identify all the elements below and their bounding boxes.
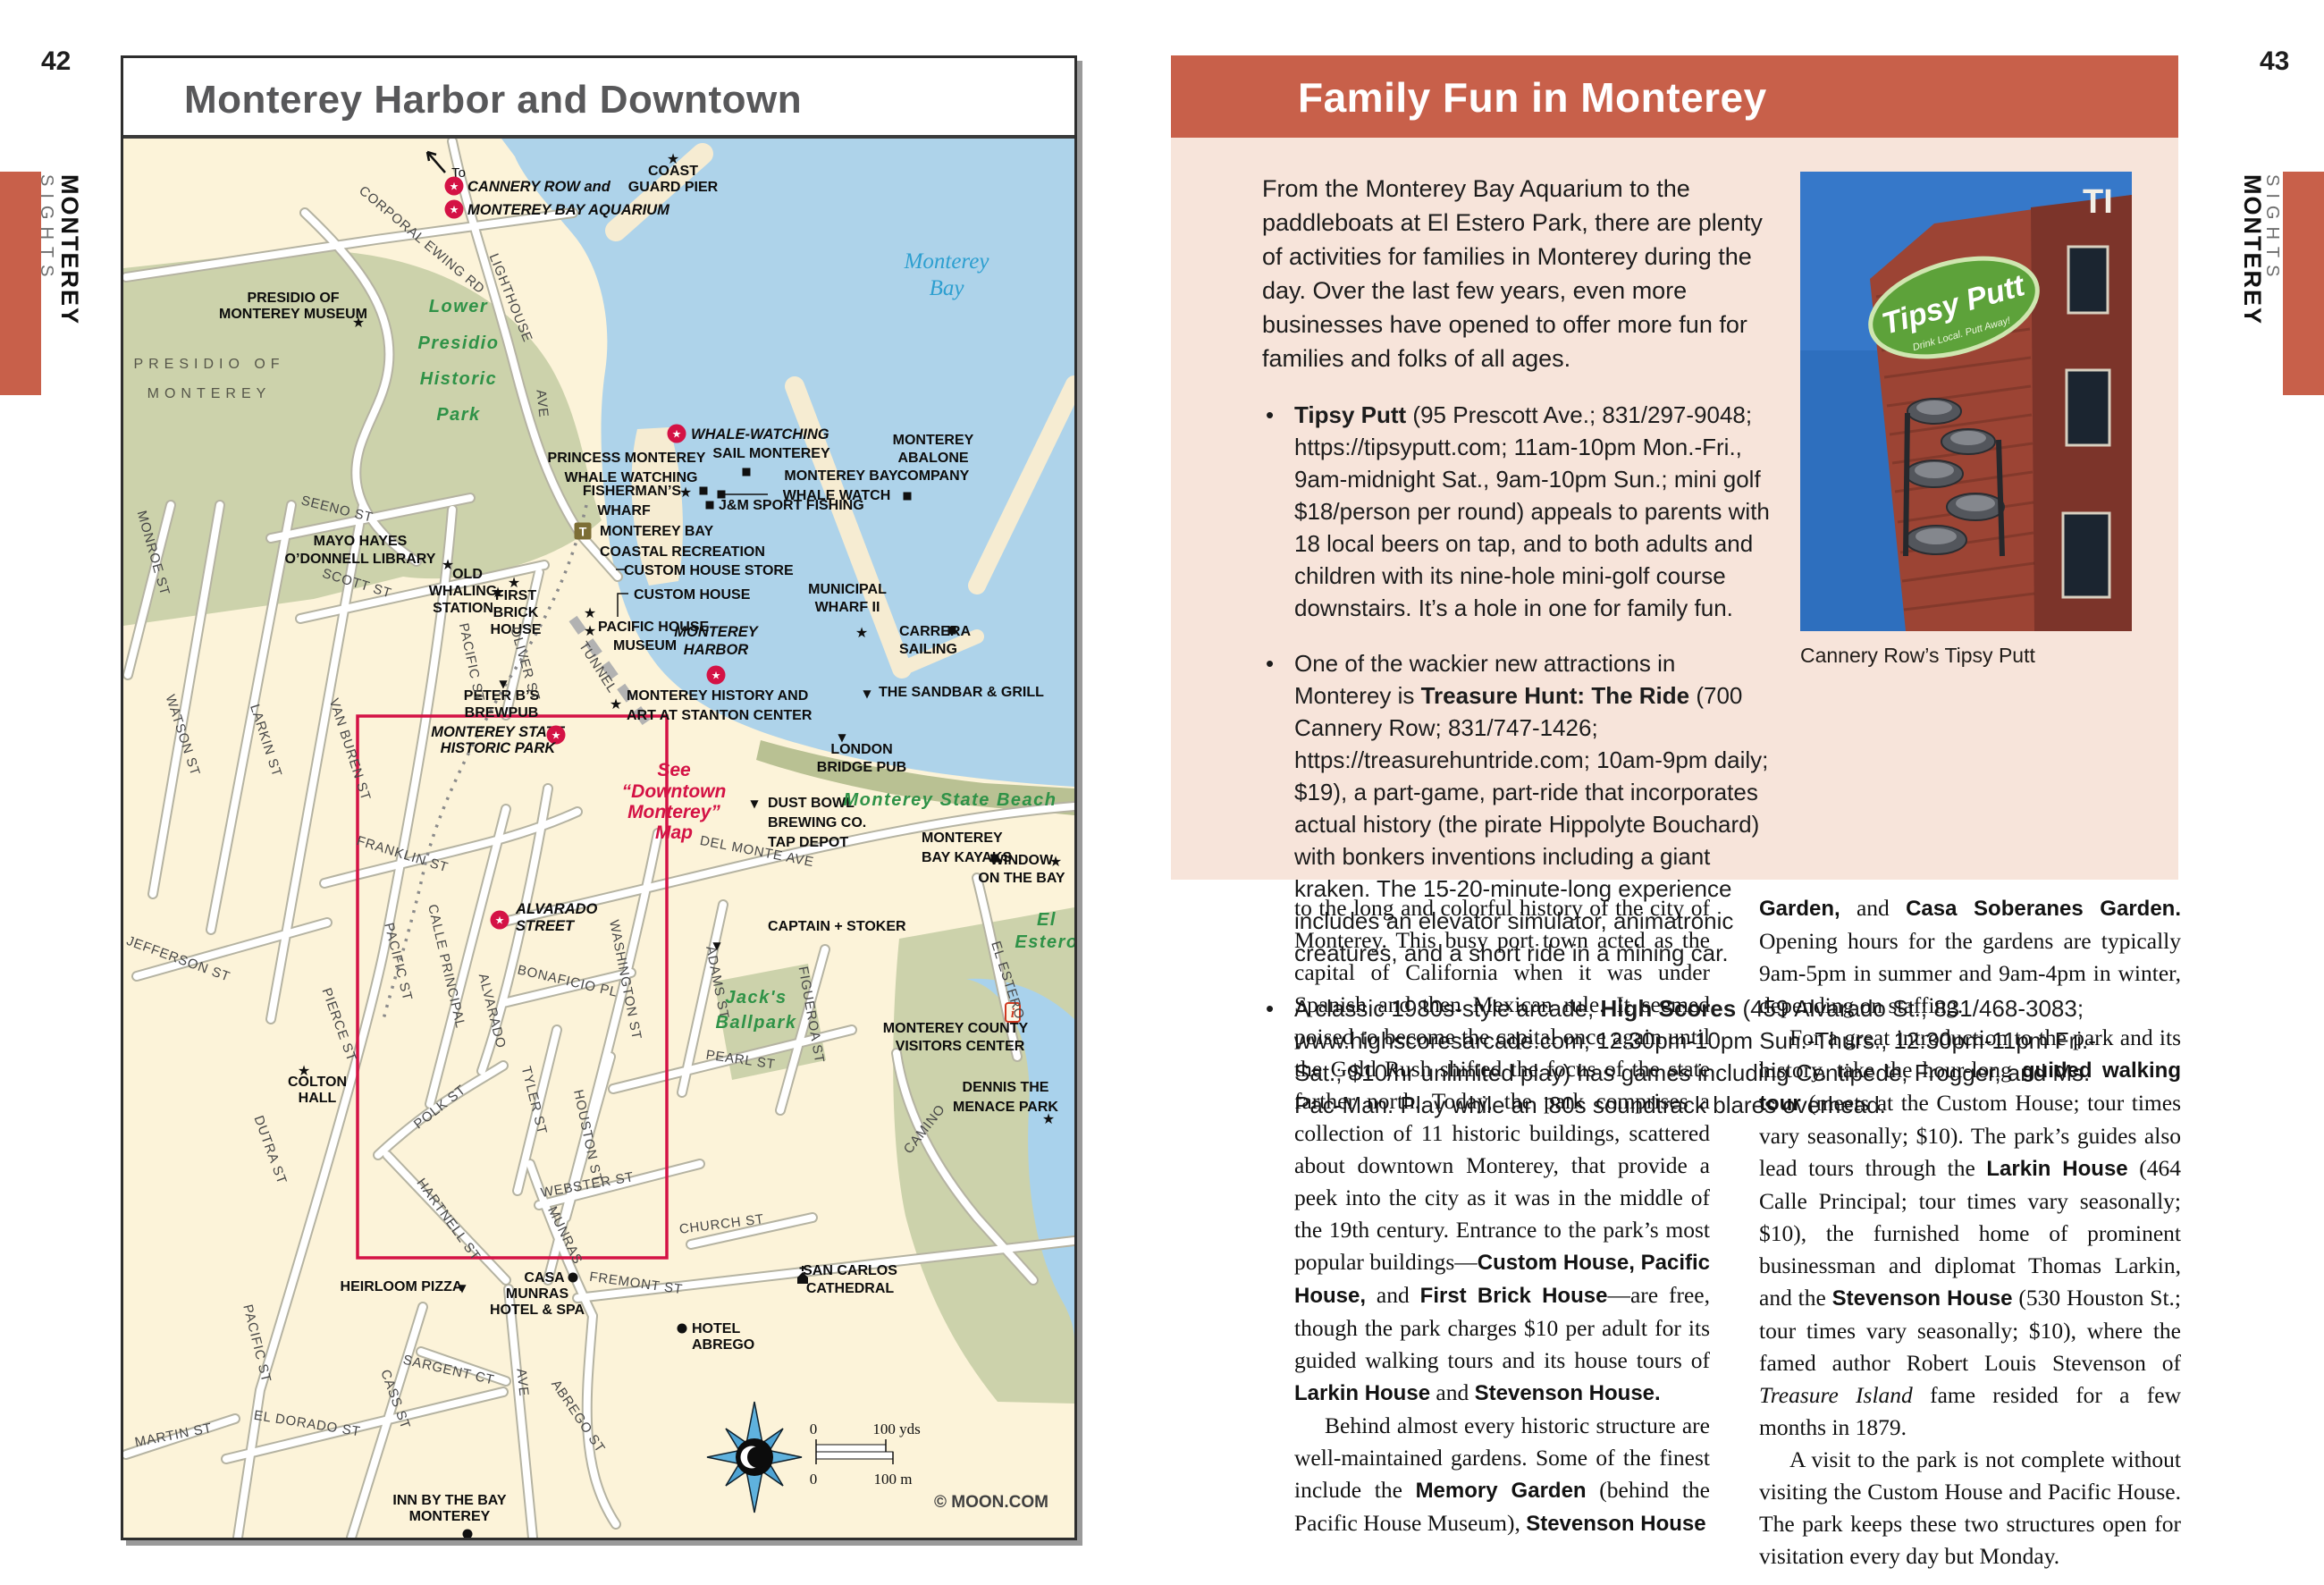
map-label: 0: [810, 1421, 818, 1437]
map-label: MONTEREY: [893, 433, 974, 448]
star-marker-icon: ★: [1049, 853, 1062, 870]
edge-tab-monterey-left: MONTEREY: [55, 174, 83, 325]
map-label: Ballpark: [716, 1013, 797, 1033]
map-label: MAYO HAYES: [314, 534, 408, 549]
map-label: MONTEREY BAY: [600, 524, 713, 539]
map-label: Monterey State Beach: [844, 790, 1057, 810]
map-label: BREWING CO.: [768, 815, 866, 830]
map-label: BREWPUB: [465, 705, 539, 721]
map-label: BRICK: [493, 605, 539, 620]
article-paragraph: A visit to the park is not complete with…: [1759, 1444, 2181, 1572]
map-label: MUNICIPAL: [808, 582, 887, 597]
article-column-1: to the long and colorful history of the …: [1294, 892, 1710, 1540]
map-label: CUSTOM HOUSE: [634, 587, 751, 603]
map-svg: To★CANNERY ROW and★MONTEREY BAY AQUARIUM…: [123, 139, 1074, 1538]
map-label: COAST: [648, 164, 698, 179]
map-label: FIRST: [495, 588, 536, 603]
article-column-2: Garden, and Casa Soberanes Garden. Openi…: [1759, 892, 2181, 1572]
square-marker-icon: [948, 627, 956, 635]
bullet-dot: •: [1262, 399, 1294, 624]
dot-marker-icon: [568, 1273, 578, 1283]
map-label: AVE: [513, 1368, 531, 1397]
edge-tab-sights-left: SIGHTS: [36, 174, 56, 283]
star-marker-icon: ★: [679, 484, 692, 501]
edge-tab-sights-right: SIGHTS: [2261, 174, 2282, 283]
map-label: “Downtown: [622, 781, 727, 802]
map-label: HALL: [299, 1091, 337, 1106]
square-marker-icon: [706, 502, 714, 510]
map-label: COLTON: [288, 1075, 347, 1090]
map-label: WHALE-WATCHING: [691, 426, 829, 443]
star-marker-icon: ★: [855, 624, 868, 641]
map-label: LONDON: [830, 742, 892, 757]
map-label: DUST BOWL: [768, 796, 855, 811]
article-paragraph: Behind almost every historic structure a…: [1294, 1410, 1710, 1540]
map-label: CASA: [524, 1270, 565, 1286]
map-label: MONTEREY: [674, 624, 760, 640]
map-label: HOTEL & SPA: [490, 1303, 585, 1318]
book-spread: { "left_page": { "page_number": "42", "e…: [0, 0, 2324, 1585]
square-marker-icon: [743, 468, 751, 476]
map-label: ALVARADO: [515, 901, 598, 917]
map-label: PRESIDIO OF: [247, 291, 339, 306]
map-label: MUSEUM: [613, 638, 677, 653]
map-label: MUNRAS: [506, 1286, 569, 1302]
map-label: PRINCESS MONTEREY: [548, 451, 706, 466]
map-title-bar: Monterey Harbor and Downtown: [123, 58, 1074, 139]
map-label: ART AT STANTON CENTER: [627, 708, 813, 723]
map-label: FISHERMAN’S: [583, 484, 682, 499]
map-label: SAILING: [899, 642, 957, 657]
map-label: CARRERA: [899, 624, 971, 639]
map-label: Park: [436, 405, 480, 425]
star-marker-icon: ★: [352, 314, 365, 331]
map-label: WHARF: [597, 503, 651, 518]
dot-marker-icon: [678, 1324, 687, 1334]
star-marker-icon: ★: [584, 604, 596, 621]
map-label: COASTAL RECREATION: [600, 544, 765, 560]
map-label: PRESIDIO OF: [133, 357, 284, 372]
map-label: ABREGO: [692, 1337, 754, 1353]
map-label: MONTEREY BAY: [784, 468, 897, 484]
map-label: See: [657, 760, 691, 780]
red-star-icon: ★: [672, 428, 682, 441]
map-label: J&M SPORT FISHING: [719, 498, 864, 513]
map-label: HEIRLOOM PIZZA: [341, 1279, 463, 1294]
map-label: COMPANY: [897, 468, 970, 484]
square-marker-icon: [700, 487, 708, 495]
map-label: Jack's: [725, 988, 787, 1007]
map-label: MONTEREY: [922, 830, 1003, 846]
map-label: CAPTAIN + STOKER: [768, 919, 906, 934]
edge-tab-color-right: [2283, 172, 2324, 395]
map-label: 100 yds: [872, 1421, 920, 1437]
page-number-left: 42: [41, 46, 71, 77]
triangle-marker-icon: ▼: [863, 687, 871, 700]
transit-icon: T: [579, 525, 587, 539]
building-sign-letters: TI: [2083, 183, 2113, 221]
red-star-icon: ★: [495, 915, 505, 927]
triangle-marker-icon: ▼: [750, 797, 759, 810]
photo-caption: Cannery Row’s Tipsy Putt: [1800, 644, 2139, 668]
map-label: BRIDGE PUB: [817, 760, 906, 775]
map-label: MONTEREY STATE: [431, 724, 565, 740]
article-paragraph: Garden, and Casa Soberanes Garden. Openi…: [1759, 892, 2181, 1022]
star-marker-icon: ★: [584, 622, 596, 639]
feature-box: From the Monterey Bay Aquarium to the pa…: [1171, 138, 2178, 880]
map-label: MONTEREY HISTORY AND: [627, 688, 808, 704]
map-label: Estero: [1015, 932, 1074, 952]
page-number-right: 43: [2260, 46, 2289, 77]
feature-box-header: Family Fun in Monterey: [1171, 55, 2178, 138]
map-label: DENNIS THE: [963, 1080, 1049, 1095]
map-monterey-harbor: Monterey Harbor and Downtown: [121, 55, 1077, 1540]
map-label: WHALING: [429, 584, 497, 599]
map-label: CUSTOM HOUSE STORE: [624, 563, 794, 578]
square-marker-icon: [904, 493, 912, 501]
red-star-icon: ★: [450, 204, 459, 216]
map-label: Lower: [429, 297, 488, 316]
star-marker-icon: ★: [1042, 1110, 1055, 1127]
map-label: ON THE BAY: [978, 871, 1065, 886]
map-label: 0: [810, 1471, 818, 1488]
map-label: 100 m: [874, 1471, 913, 1488]
map-label: Historic: [420, 369, 497, 389]
map-label: CANNERY ROW and: [467, 179, 611, 195]
map-label: THE SANDBAR & GRILL: [879, 685, 1044, 700]
bullet-tipsy-putt-text: Tipsy Putt (95 Prescott Ave.; 831/297-90…: [1294, 399, 1773, 624]
map-label: Monterey: [904, 249, 990, 274]
map-label: MONTEREY: [147, 386, 272, 401]
map-label: El: [1037, 910, 1057, 930]
map-label: ABALONE: [897, 451, 968, 466]
map-label: STATION: [433, 601, 493, 616]
feature-box-title: Family Fun in Monterey: [1171, 55, 2178, 122]
map-label: AVE: [533, 389, 551, 418]
bullet-tipsy-putt: • Tipsy Putt (95 Prescott Ave.; 831/297-…: [1262, 399, 1773, 624]
bullet-dot: •: [1262, 992, 1294, 1121]
map-label: HOTEL: [692, 1321, 740, 1336]
map-label: O’DONNELL LIBRARY: [285, 552, 436, 567]
article-paragraph: For a great introduction to the park and…: [1759, 1022, 2181, 1444]
article-paragraph: to the long and colorful history of the …: [1294, 892, 1710, 1410]
feature-intro: From the Monterey Bay Aquarium to the pa…: [1262, 172, 1773, 375]
photo-tipsy-putt: TI Tipsy Putt Drink Local. Putt Away!: [1800, 172, 2132, 631]
map-label: MONTEREY: [409, 1509, 491, 1524]
map-label: HARBOR: [684, 642, 748, 658]
map-label: GUARD PIER: [628, 180, 719, 195]
map-label: MONTEREY BAY AQUARIUM: [467, 202, 670, 218]
map-label: SAIL MONTEREY: [712, 446, 830, 461]
map-label: CATHEDRAL: [806, 1281, 895, 1296]
map-title: Monterey Harbor and Downtown: [123, 58, 1074, 122]
map-label: Bay: [930, 276, 965, 300]
map-label: WHARF II: [815, 600, 880, 615]
red-star-icon: ★: [712, 670, 721, 682]
star-marker-icon: ★: [610, 696, 622, 712]
map-label: STREET: [516, 918, 576, 934]
bullet-dot: •: [1262, 647, 1294, 969]
map-label: HISTORIC PARK: [441, 740, 557, 756]
red-star-icon: ★: [450, 181, 459, 193]
map-label: INN BY THE BAY: [392, 1493, 506, 1508]
map-label: SAN CARLOS: [803, 1263, 897, 1278]
map-label: Map: [655, 822, 693, 843]
map-label: VISITORS CENTER: [896, 1039, 1025, 1054]
map-label: WINDOW: [990, 853, 1054, 868]
map-label: MONTEREY MUSEUM: [219, 307, 367, 322]
triangle-marker-icon: ▼: [458, 1282, 467, 1294]
map-label: Presidio: [418, 333, 500, 353]
map-label: OLD: [452, 567, 483, 582]
map-label: © MOON.COM: [934, 1493, 1048, 1512]
map-label: Monterey”: [627, 802, 720, 822]
map-label: MONTEREY COUNTY: [883, 1021, 1029, 1036]
